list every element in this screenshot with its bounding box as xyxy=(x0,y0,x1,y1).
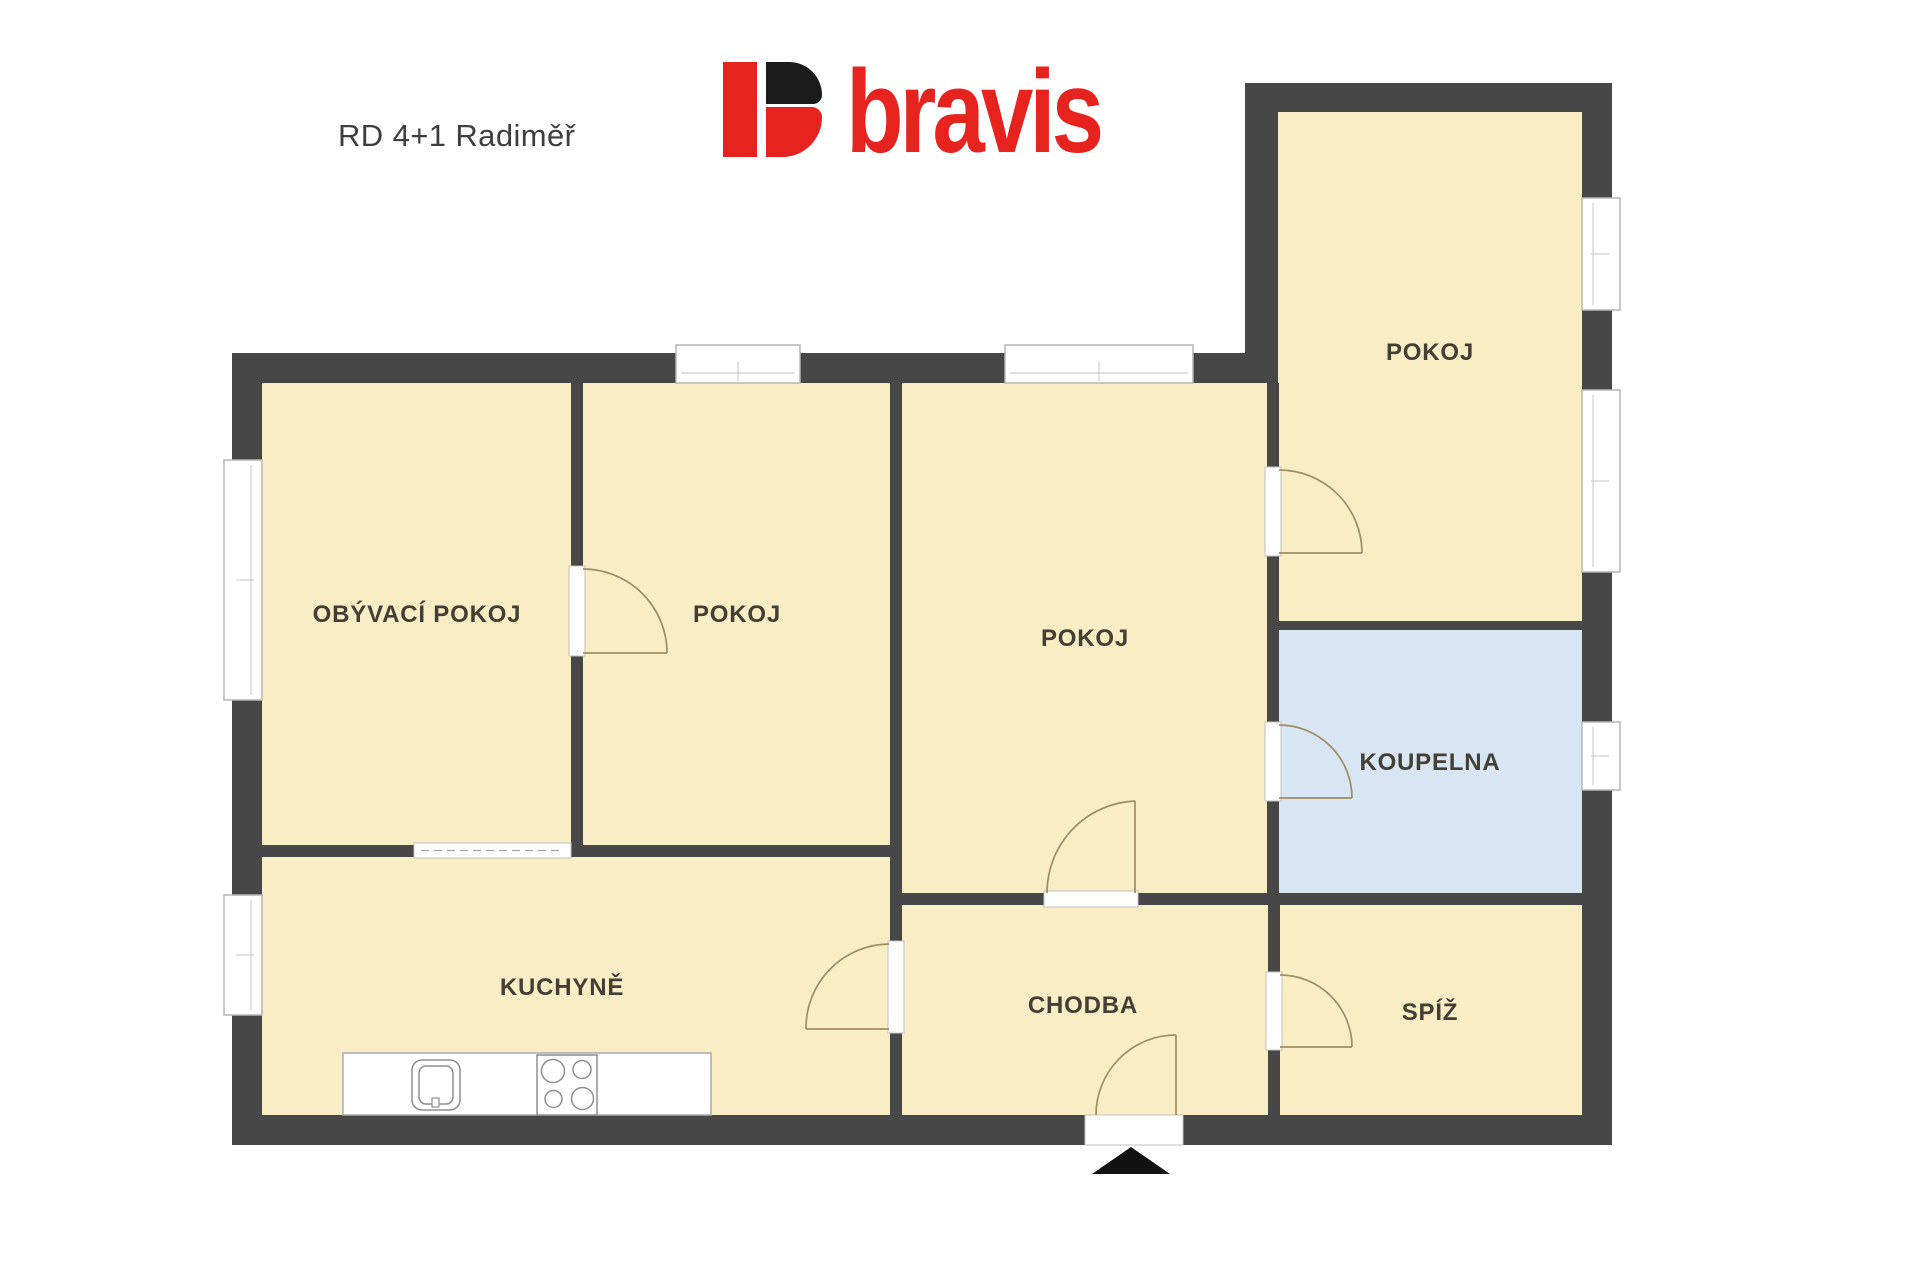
wall-hall-pantry-lower xyxy=(1268,1049,1280,1117)
label-pokoj-stredni: POKOJ xyxy=(1041,625,1129,652)
window-right-wing-b xyxy=(1582,390,1620,572)
wing-room-fill xyxy=(1278,112,1582,621)
entrance-arrow-icon xyxy=(1092,1147,1170,1174)
wall-kitchen-hall-lower xyxy=(890,1032,902,1117)
wall-pokoj-wing-b xyxy=(1267,555,1279,723)
label-kuchyne: KUCHYNĚ xyxy=(500,973,624,1001)
wall-pokoj-wing-a xyxy=(1267,383,1279,468)
window-left-living xyxy=(224,460,262,700)
label-pokoj-horni: POKOJ xyxy=(693,601,781,628)
window-left-kitchen xyxy=(224,895,262,1015)
wall-top-wing xyxy=(1245,83,1612,112)
window-top-pokoj xyxy=(676,345,800,383)
label-spiz: SPÍŽ xyxy=(1402,998,1459,1026)
wall-bottom-main xyxy=(232,1115,1612,1145)
floor-plan-page: RD 4+1 Radiměř bravis xyxy=(0,0,1920,1280)
label-pokoj-kridlo: POKOJ xyxy=(1386,339,1474,366)
window-right-wing-a xyxy=(1582,198,1620,310)
floor-plan: OBÝVACÍ POKOJ POKOJ POKOJ POKOJ KOUPELNA… xyxy=(0,0,1920,1280)
label-koupelna: KOUPELNA xyxy=(1359,749,1500,776)
wall-pokoj-pokoj-upper xyxy=(890,383,902,942)
stove-icon xyxy=(537,1055,597,1115)
label-chodba: CHODBA xyxy=(1028,992,1138,1019)
sink-icon xyxy=(412,1060,460,1110)
wall-left-wing xyxy=(1245,83,1278,383)
wall-pokoj-bath-c xyxy=(1267,800,1279,893)
window-right-bathroom xyxy=(1582,722,1620,790)
wall-living-pokoj-lower xyxy=(571,655,583,857)
label-obyvaci-pokoj: OBÝVACÍ POKOJ xyxy=(313,600,522,628)
wall-wing-bath xyxy=(1279,621,1582,630)
wall-living-kitchen-left xyxy=(262,845,414,857)
wall-living-pokoj-upper xyxy=(571,383,583,567)
wall-hall-top-right xyxy=(1137,893,1582,905)
wall-hall-pantry-upper xyxy=(1268,905,1280,973)
pass-through-hatch xyxy=(414,843,571,858)
window-top-pokoj-middle xyxy=(1005,345,1193,383)
kitchen-counter xyxy=(343,1053,711,1115)
wall-hall-top-left xyxy=(890,893,1045,905)
wall-pokoj-kitchen-right xyxy=(571,845,890,857)
